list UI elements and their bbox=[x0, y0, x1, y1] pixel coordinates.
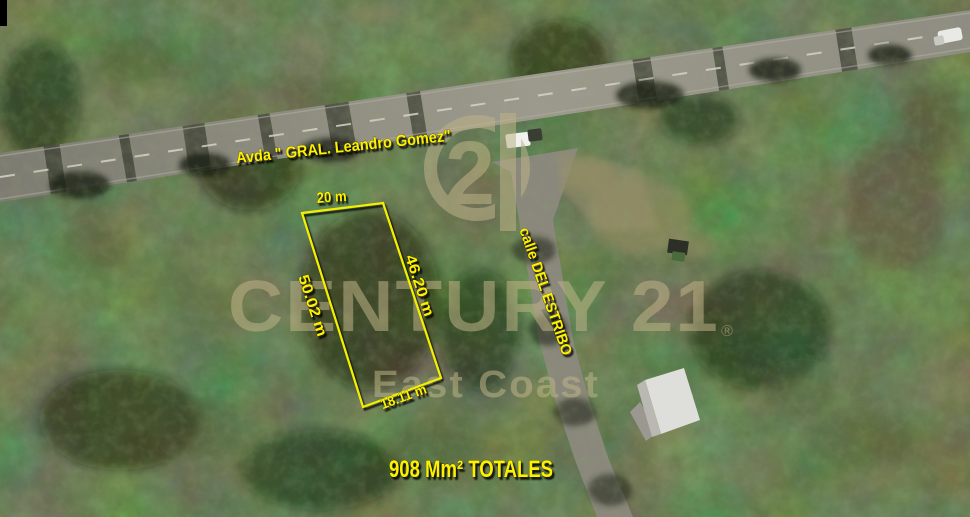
total-area-label: 908 Mm² TOTALES bbox=[389, 456, 553, 483]
c21-seal-digit-1-bar bbox=[500, 113, 516, 231]
aerial-scene: 2 CENTURY 21 ® East Coast Avda " GRAL. L… bbox=[0, 0, 970, 517]
canopy-speckle-overlay bbox=[0, 0, 970, 517]
image-edge-notch bbox=[0, 0, 7, 26]
aerial-listing-image: 2 CENTURY 21 ® East Coast Avda " GRAL. L… bbox=[0, 0, 970, 517]
registered-trademark-symbol: ® bbox=[721, 323, 733, 340]
parcel-top-length-label: 20 m bbox=[316, 188, 347, 207]
c21-seal-digit-2: 2 bbox=[445, 124, 495, 224]
